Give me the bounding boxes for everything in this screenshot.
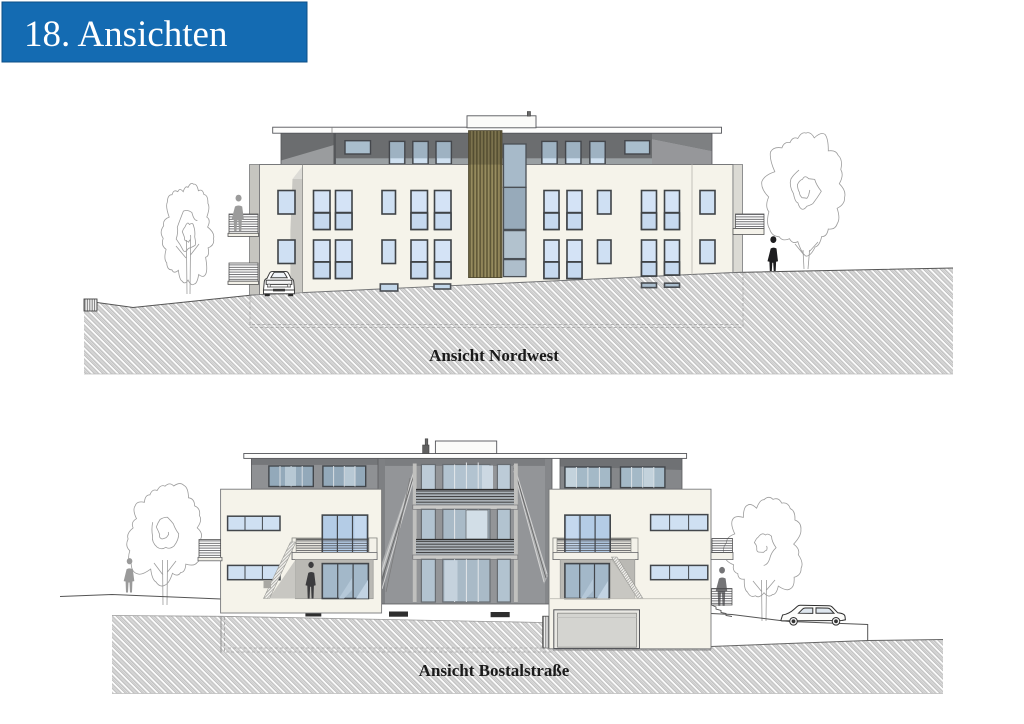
svg-text:18. Ansichten: 18. Ansichten [24,14,227,55]
svg-text:Ansicht Bostalstraße: Ansicht Bostalstraße [419,661,570,680]
svg-text:Ansicht Nordwest: Ansicht Nordwest [429,346,559,365]
